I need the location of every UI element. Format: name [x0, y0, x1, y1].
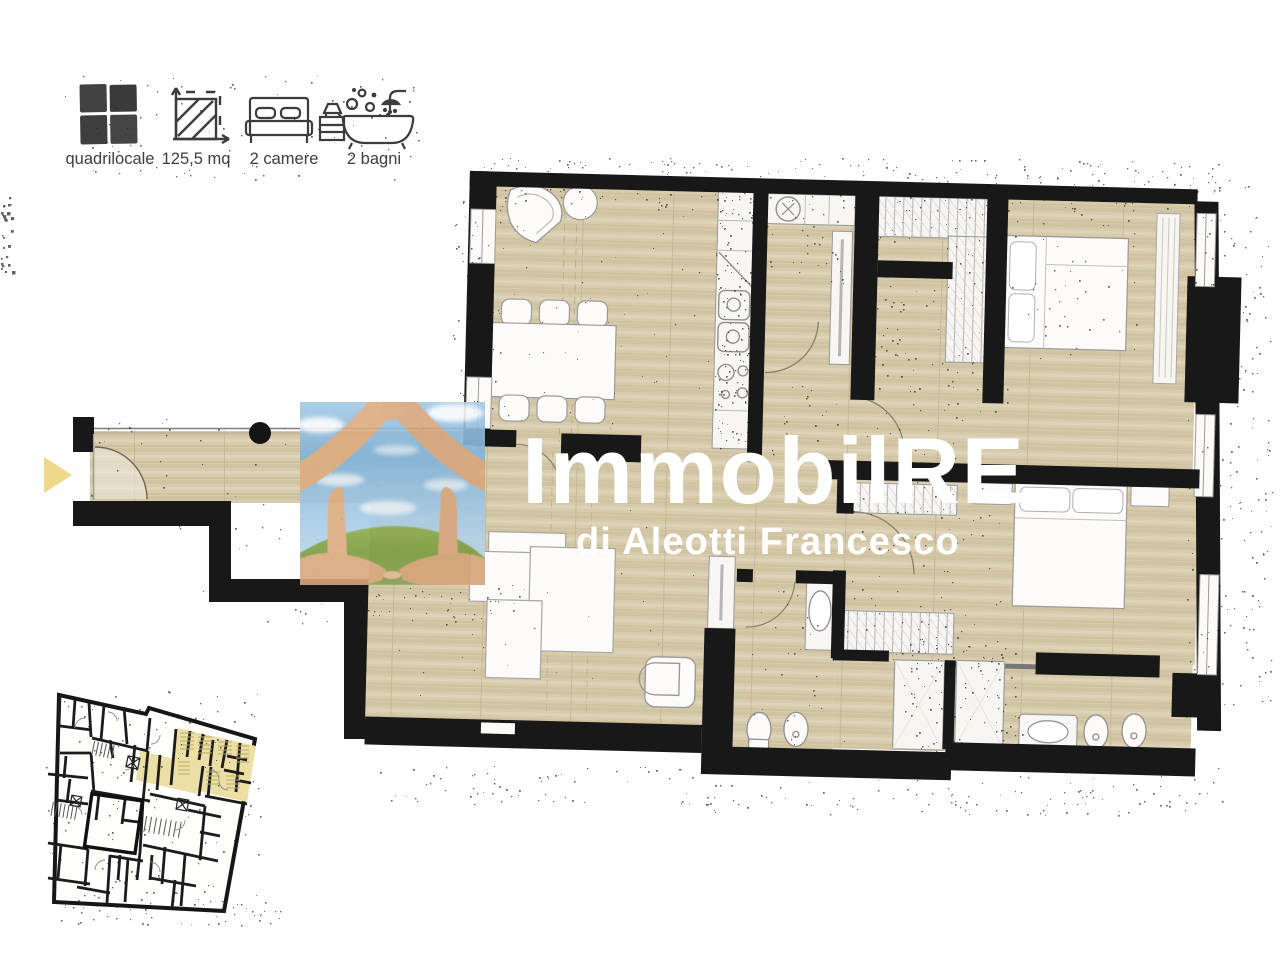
svg-text:2 bagni: 2 bagni	[347, 150, 401, 168]
svg-text:125,5 mq: 125,5 mq	[162, 150, 231, 168]
svg-text:di Aleotti Francesco: di Aleotti Francesco	[576, 521, 960, 563]
svg-text:quadrilocale: quadrilocale	[66, 150, 155, 168]
svg-text:2 camere: 2 camere	[250, 150, 319, 168]
svg-text:ImmobilRE: ImmobilRE	[522, 418, 1026, 523]
